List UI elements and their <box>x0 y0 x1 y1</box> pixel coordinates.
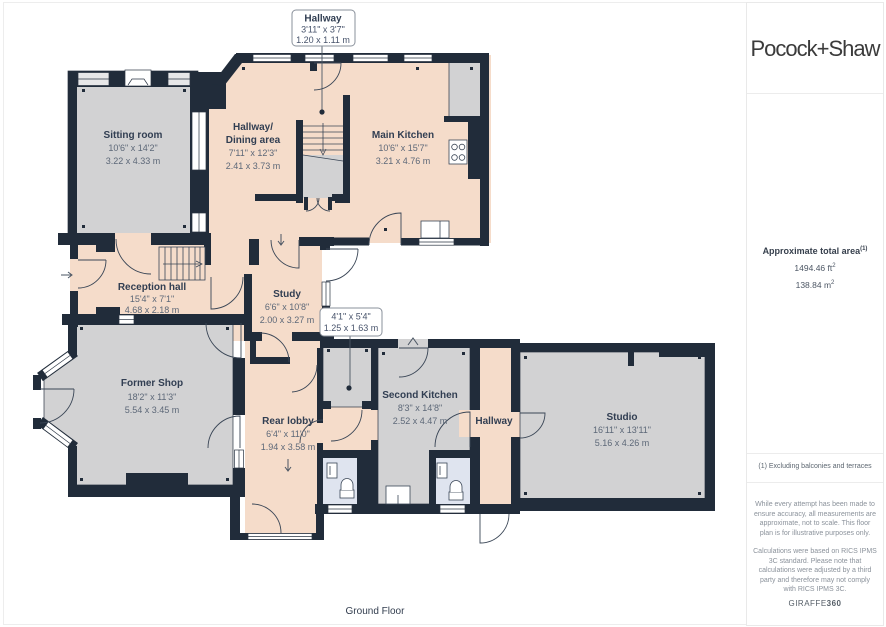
svg-text:10'6" x 14'2": 10'6" x 14'2" <box>108 143 157 153</box>
svg-text:6'4" x 11'0": 6'4" x 11'0" <box>266 429 310 439</box>
svg-text:1.25 x 1.63 m: 1.25 x 1.63 m <box>324 323 379 333</box>
svg-text:8'3" x 14'8": 8'3" x 14'8" <box>398 403 442 413</box>
svg-text:Sitting room: Sitting room <box>104 130 163 141</box>
svg-text:Rear lobby: Rear lobby <box>262 416 314 427</box>
svg-text:2.00 x 3.27 m: 2.00 x 3.27 m <box>260 315 315 325</box>
svg-text:2.41 x 3.73 m: 2.41 x 3.73 m <box>226 161 281 171</box>
svg-text:Studio: Studio <box>606 412 637 423</box>
svg-text:Hallway/: Hallway/ <box>233 122 273 133</box>
svg-text:5.54 x 3.45 m: 5.54 x 3.45 m <box>125 405 180 415</box>
svg-text:10'6" x 15'7": 10'6" x 15'7" <box>378 143 427 153</box>
svg-text:4.68 x 2.18 m: 4.68 x 2.18 m <box>125 305 180 315</box>
svg-text:Hallway: Hallway <box>475 416 513 427</box>
svg-text:18'2" x 11'3": 18'2" x 11'3" <box>128 392 177 402</box>
svg-text:Study: Study <box>273 289 301 300</box>
svg-text:1.20 x 1.11 m: 1.20 x 1.11 m <box>296 35 350 45</box>
svg-text:7'11" x 12'3": 7'11" x 12'3" <box>229 148 278 158</box>
svg-text:6'6" x 10'8": 6'6" x 10'8" <box>265 302 309 312</box>
svg-text:4'1" x 5'4": 4'1" x 5'4" <box>331 312 370 322</box>
svg-text:5.16 x 4.26 m: 5.16 x 4.26 m <box>595 438 650 448</box>
svg-text:3'11" x 3'7": 3'11" x 3'7" <box>301 25 345 35</box>
svg-text:Hallway: Hallway <box>304 14 342 25</box>
svg-text:Dining area: Dining area <box>226 135 281 146</box>
svg-text:1.94 x 3.58 m: 1.94 x 3.58 m <box>261 442 316 452</box>
svg-text:Main Kitchen: Main Kitchen <box>372 130 434 141</box>
svg-text:Reception hall: Reception hall <box>118 282 187 293</box>
svg-text:Second Kitchen: Second Kitchen <box>382 390 458 401</box>
svg-text:2.52 x 4.47 m: 2.52 x 4.47 m <box>393 416 448 426</box>
svg-text:Former Shop: Former Shop <box>121 378 183 389</box>
svg-text:15'4" x 7'1": 15'4" x 7'1" <box>130 294 174 304</box>
svg-text:16'11" x 13'11": 16'11" x 13'11" <box>593 425 651 435</box>
svg-text:3.22 x 4.33 m: 3.22 x 4.33 m <box>106 156 161 166</box>
svg-text:3.21 x 4.76 m: 3.21 x 4.76 m <box>376 156 431 166</box>
